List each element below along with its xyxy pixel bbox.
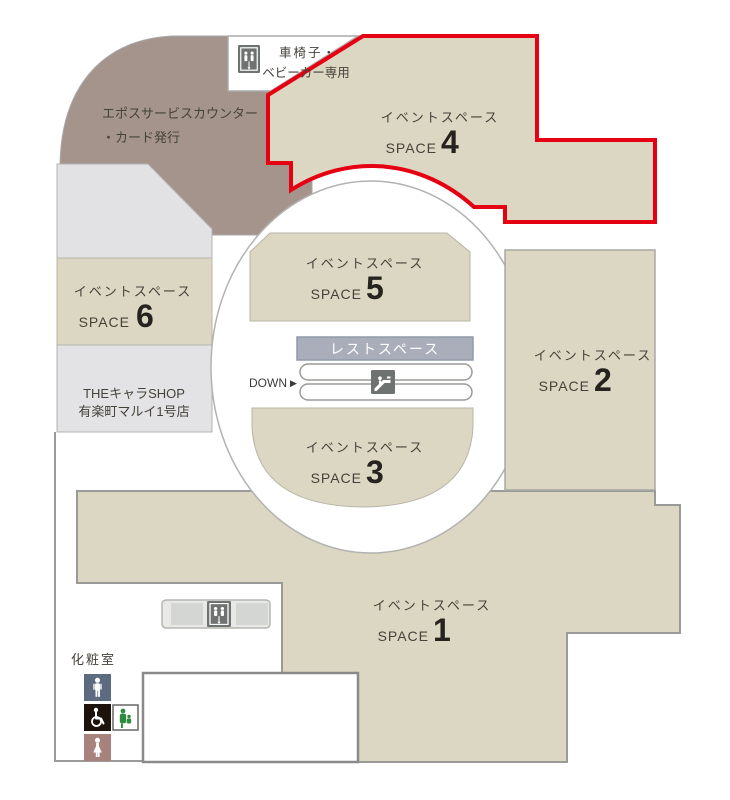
space-4-word: SPACE xyxy=(386,140,437,156)
space-3-word: SPACE xyxy=(311,470,362,486)
space-1-word: SPACE xyxy=(378,628,429,644)
backroom-region xyxy=(143,673,358,762)
space-6-label: イベントスペース xyxy=(74,284,192,299)
restroom-label: 化粧室 xyxy=(71,652,116,667)
space-5-region xyxy=(250,233,470,321)
space-1-label: イベントスペース xyxy=(373,598,491,613)
chara-shop-label-line1: THEキャラSHOP xyxy=(83,386,185,401)
space-5-word: SPACE xyxy=(311,286,362,302)
epos-counter-label-line2: ・カード発行 xyxy=(102,130,180,145)
space-4-label: イベントスペース xyxy=(381,110,499,125)
female-restroom-icon xyxy=(84,734,111,761)
space-1-number: 1 xyxy=(433,612,451,648)
wheelchair-stroller-label-line2: ベビーカー専用 xyxy=(262,66,350,80)
space-6-region xyxy=(57,258,212,345)
elevator-icon xyxy=(207,601,231,627)
floor-map: 車椅子・ ベビーカー専用 エポスサービスカウンター ・カード発行 イベントスペー… xyxy=(0,0,730,800)
space-5-label: イベントスペース xyxy=(306,256,424,271)
elevator-icon xyxy=(238,45,260,73)
space-6-word: SPACE xyxy=(79,314,130,330)
space-4-number: 4 xyxy=(441,124,459,160)
wheelchair-accessible-icon xyxy=(84,704,111,731)
rest-space-label: レストスペース xyxy=(330,341,440,357)
down-arrow: ▶ xyxy=(290,378,297,388)
space-2-region xyxy=(505,250,655,490)
space-2-number: 2 xyxy=(594,362,612,398)
space-3-number: 3 xyxy=(366,454,384,490)
space-2-word: SPACE xyxy=(539,378,590,394)
space-5-number: 5 xyxy=(366,270,384,306)
space-3-label: イベントスペース xyxy=(306,440,424,455)
baby-care-icon xyxy=(113,705,138,730)
epos-counter-label-line1: エポスサービスカウンター xyxy=(102,106,258,121)
elevator-bank xyxy=(162,600,270,628)
wheelchair-stroller-label-line1: 車椅子・ xyxy=(279,46,337,60)
space-2-label: イベントスペース xyxy=(534,348,652,363)
space-6-number: 6 xyxy=(136,298,154,334)
escalator-icon xyxy=(371,370,395,394)
down-label: DOWN xyxy=(249,376,287,390)
chara-shop-label-line2: 有楽町マルイ1号店 xyxy=(78,404,189,419)
male-restroom-icon xyxy=(84,674,111,701)
